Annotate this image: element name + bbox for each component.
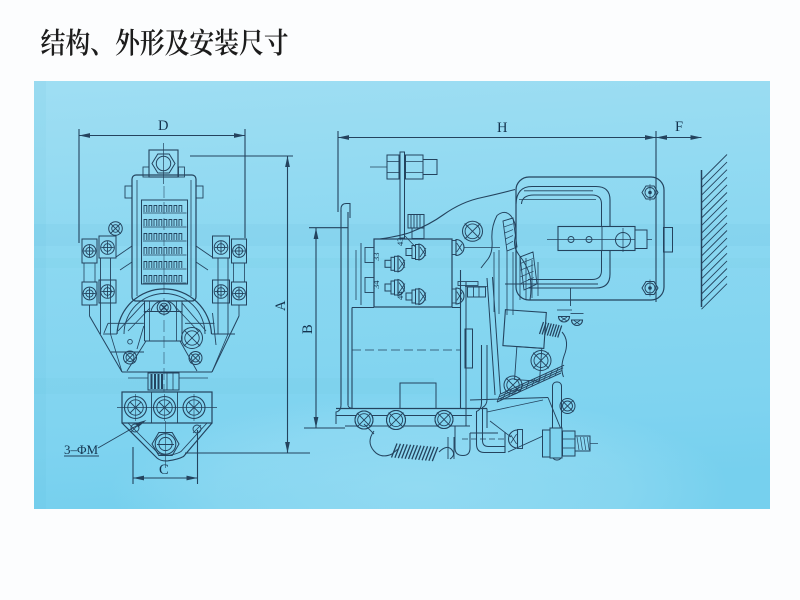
svg-text:C: C — [159, 462, 169, 478]
svg-text:44: 44 — [395, 291, 405, 300]
svg-text:F: F — [675, 119, 683, 135]
svg-text:H: H — [497, 120, 508, 136]
svg-text:43: 43 — [395, 238, 405, 247]
svg-text:3–ΦM: 3–ΦM — [64, 442, 99, 457]
svg-text:B: B — [300, 324, 316, 334]
svg-text:34: 34 — [371, 280, 381, 289]
svg-text:D: D — [158, 118, 168, 134]
svg-text:A: A — [273, 300, 289, 311]
svg-text:33: 33 — [371, 253, 381, 262]
